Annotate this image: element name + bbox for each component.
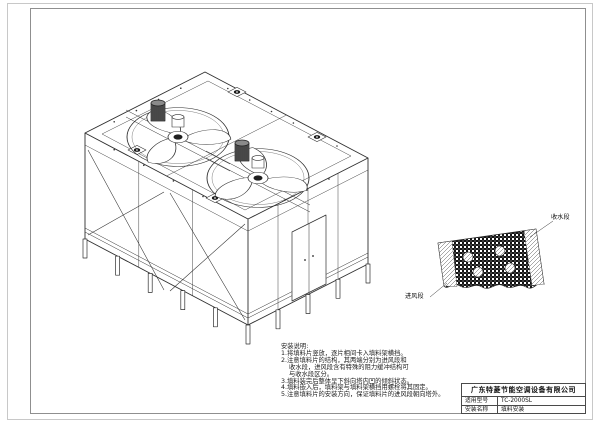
company-name: 广东特菱节能空调设备有限公司 <box>471 385 576 395</box>
installation-notes: 安装说明: 1.将填料片竖放，逐片相间卡入填料架横挡。 2.注意填料片的结构，其… <box>281 344 481 399</box>
fan-gearbox-2 <box>252 156 264 168</box>
leader-line-water-section <box>530 221 553 237</box>
title-block-name-row: 安装名称 填料安装 <box>462 405 585 414</box>
model-value: TC-2000SL <box>498 397 585 405</box>
title-block: 广东特菱节能空调设备有限公司 适用型号 TC-2000SL 安装名称 填料安装 <box>461 383 586 414</box>
tower-legs <box>83 239 370 344</box>
install-name-label: 安装名称 <box>462 406 498 414</box>
title-block-company-row: 广东特菱节能空调设备有限公司 <box>462 384 585 396</box>
title-block-model-row: 适用型号 TC-2000SL <box>462 396 585 405</box>
tower-isometric-view <box>83 72 370 344</box>
install-name-value: 填料安装 <box>498 406 585 414</box>
fan-assembly-2 <box>206 140 313 212</box>
fan-motor-1 <box>151 100 165 121</box>
model-label: 适用型号 <box>462 397 498 405</box>
drawing-sheet: 收水段 进风段 安装说明: 1.将填料片竖放，逐片相间卡入填料架横挡。 2.注意… <box>0 0 600 424</box>
tower-left-wall <box>85 145 248 320</box>
fan-gearbox-1 <box>172 115 184 127</box>
fan-motor-2 <box>235 140 249 161</box>
fill-detail-view <box>430 221 553 297</box>
label-water-collection-section: 收水段 <box>551 212 570 221</box>
note-line: 5.注意填料片的安装方向，保证填料片的进风段朝向塔外。 <box>281 392 481 399</box>
label-air-inlet-section: 进风段 <box>405 291 424 300</box>
leader-line-air-section <box>430 283 447 297</box>
